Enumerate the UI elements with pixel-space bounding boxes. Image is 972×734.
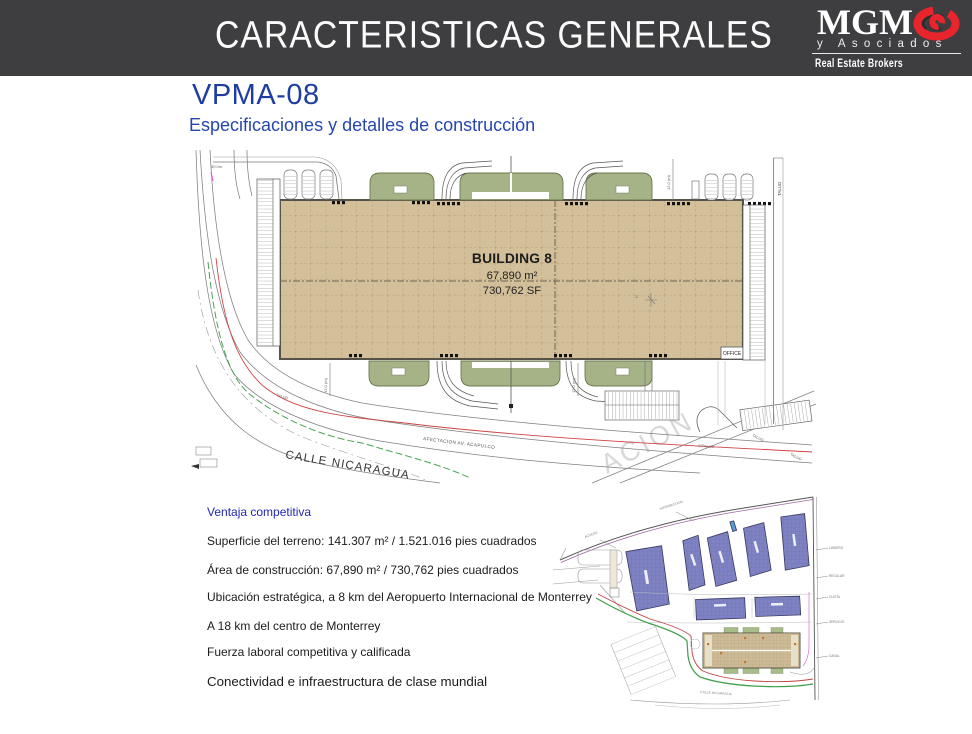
svg-text:CANAL: CANAL bbox=[829, 654, 840, 658]
svg-text:ACCESO: ACCESO bbox=[584, 530, 599, 539]
svg-text:REGULAR: REGULAR bbox=[829, 574, 845, 578]
svg-text:INTERSECCION: INTERSECCION bbox=[659, 499, 684, 510]
svg-text:SERVICIO: SERVICIO bbox=[829, 620, 845, 624]
svg-text:CUOTA: CUOTA bbox=[829, 595, 841, 599]
svg-text:LINDERO: LINDERO bbox=[829, 546, 844, 550]
svg-text:CALLE NICARAGUA: CALLE NICARAGUA bbox=[700, 690, 733, 696]
